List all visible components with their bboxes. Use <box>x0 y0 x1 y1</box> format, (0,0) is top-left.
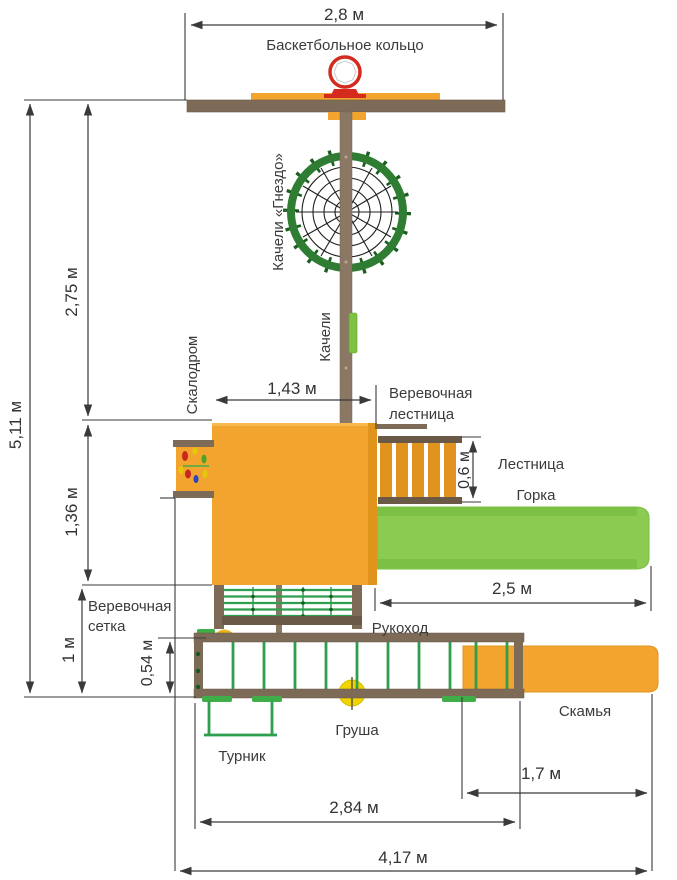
label-rope-ladder: Веревочная лестница <box>389 383 483 425</box>
label-climbing-wall: Скалодром <box>183 336 203 415</box>
dimension-monkey-bars-length: 2,84 м <box>329 798 379 818</box>
label-rope-net: Веревочная сетка <box>88 597 184 637</box>
label-nest-swing: Качели «Гнездо» <box>269 153 289 271</box>
dimension-middle-section-height: 1,36 м <box>62 487 82 537</box>
dimension-net-section-height: 1 м <box>59 637 79 663</box>
pullup-bar-drawing <box>204 701 277 735</box>
dimension-hoop-beam-width: 2,8 м <box>324 5 364 25</box>
climbing-wall-drawing <box>173 440 214 498</box>
dimension-platform-width: 1,43 м <box>267 379 317 399</box>
playground-plan-diagram: 2,8 м Баскетбольное кольцо Качели «Гнезд… <box>0 0 677 880</box>
dimension-bench-length: 1,7 м <box>521 764 561 784</box>
dimension-total-height: 5,11 м <box>6 401 26 449</box>
label-bench: Скамья <box>559 702 611 722</box>
label-slide: Горка <box>516 486 555 506</box>
label-basketball-hoop: Баскетбольное кольцо <box>266 36 424 56</box>
dimension-slide-length: 2,5 м <box>492 579 532 599</box>
slide-drawing <box>377 507 649 569</box>
label-ladder: Лестница <box>498 455 564 475</box>
dimension-net-offset-height: 0,54 м <box>138 640 158 687</box>
ladder-drawing <box>377 424 462 504</box>
basketball-unit-drawing <box>187 57 505 120</box>
platform-drawing <box>212 423 377 585</box>
label-pullup-bar: Турник <box>218 747 265 767</box>
plan-drawing <box>0 0 677 880</box>
label-swing: Качели <box>316 312 336 362</box>
rope-net-drawing <box>197 585 362 637</box>
dimension-total-width: 4,17 м <box>378 848 428 868</box>
label-punching-bag: Груша <box>335 721 378 741</box>
dimension-upper-section-height: 2,75 м <box>62 267 82 317</box>
dimension-ladder-width: 0,6 м <box>455 451 475 489</box>
bench-drawing <box>463 646 658 692</box>
label-monkey-bars: Рукоход <box>372 619 429 639</box>
